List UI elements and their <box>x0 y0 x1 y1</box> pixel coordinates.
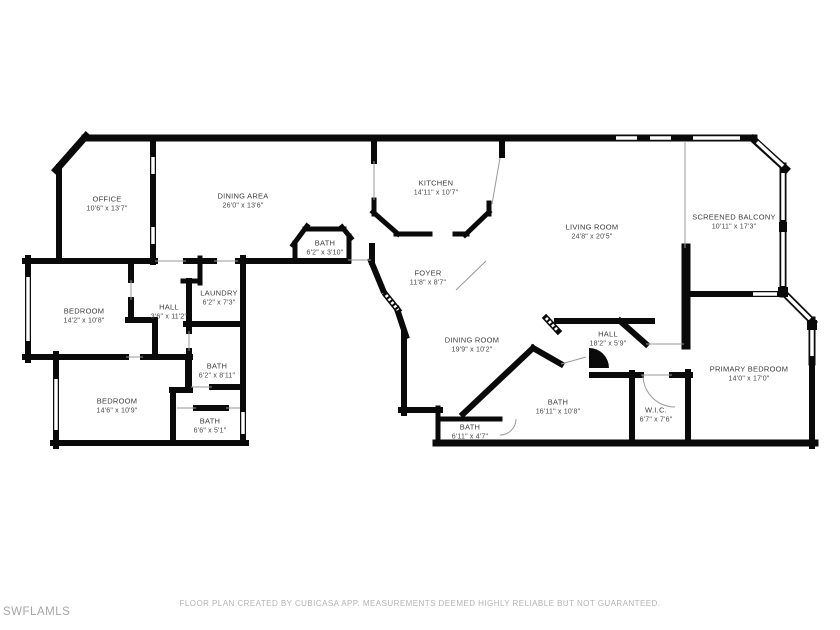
room-label-bath-pod: BATH6'2" x 3'10" <box>307 239 344 258</box>
window-balcony-se <box>787 296 810 319</box>
room-label-bath-5: BATH6'11" x 4'7" <box>452 423 488 442</box>
balcony-post-corner <box>778 287 788 297</box>
floor-plan-canvas <box>0 0 840 630</box>
room-label-hall-2: HALL18'2" x 5'9" <box>590 330 627 349</box>
room-label-wic: W.I.C.6'7" x 7'6" <box>640 406 673 425</box>
balcony-post-mid <box>779 222 787 232</box>
wic-door-arc <box>643 375 675 407</box>
window-balcony-ne <box>757 142 783 166</box>
opening-bath4-door <box>561 357 586 364</box>
room-label-bath-4: BATH16'11" x 10'8" <box>536 398 581 417</box>
opening-dining-living <box>456 261 486 290</box>
room-label-bath-2: BATH6'2" x 8'11" <box>199 362 235 381</box>
floor-plan: OFFICE10'6" x 13'7" DINING AREA26'0" x 1… <box>0 0 840 630</box>
room-label-kitchen: KITCHEN14'11" x 10'7" <box>414 179 459 198</box>
room-label-living-room: LIVING ROOM24'8" x 20'5" <box>566 223 619 242</box>
bath4-door-wedge <box>589 348 609 368</box>
wall-foyer-west <box>371 246 406 336</box>
room-label-screened-balcony: SCREENED BALCONY10'11" x 17'3" <box>692 213 776 232</box>
room-label-bedroom-2: BEDROOM14'6" x 10'9" <box>97 397 138 416</box>
room-label-primary-bedroom: PRIMARY BEDROOM14'0" x 17'0" <box>710 365 789 384</box>
room-label-bedroom-1: BEDROOM14'2" x 10'8" <box>64 307 105 326</box>
wall-kitchen-bay <box>373 200 489 235</box>
room-label-foyer: FOYER11'8" x 8'7" <box>410 269 446 288</box>
room-label-dining-room: DINING ROOM19'9" x 10'2" <box>445 336 499 355</box>
room-label-laundry: LAUNDRY6'2" x 7'3" <box>200 289 237 308</box>
room-label-office: OFFICE10'6" x 13'7" <box>87 195 128 214</box>
wall-bedroom2-closet <box>172 357 190 443</box>
room-label-dining-area: DINING AREA26'0" x 13'6" <box>217 192 268 211</box>
room-label-bath-3: BATH6'6" x 5'1" <box>194 417 227 436</box>
wall-dining-room-west <box>401 333 440 413</box>
disclaimer-text: FLOOR PLAN CREATED BY CUBICASA APP. MEAS… <box>180 599 661 608</box>
primary-post-corner <box>807 320 817 330</box>
mls-watermark: SWFLAMLS <box>3 606 70 618</box>
room-label-hall-1: HALL3'6" x 11'2" <box>151 303 187 322</box>
